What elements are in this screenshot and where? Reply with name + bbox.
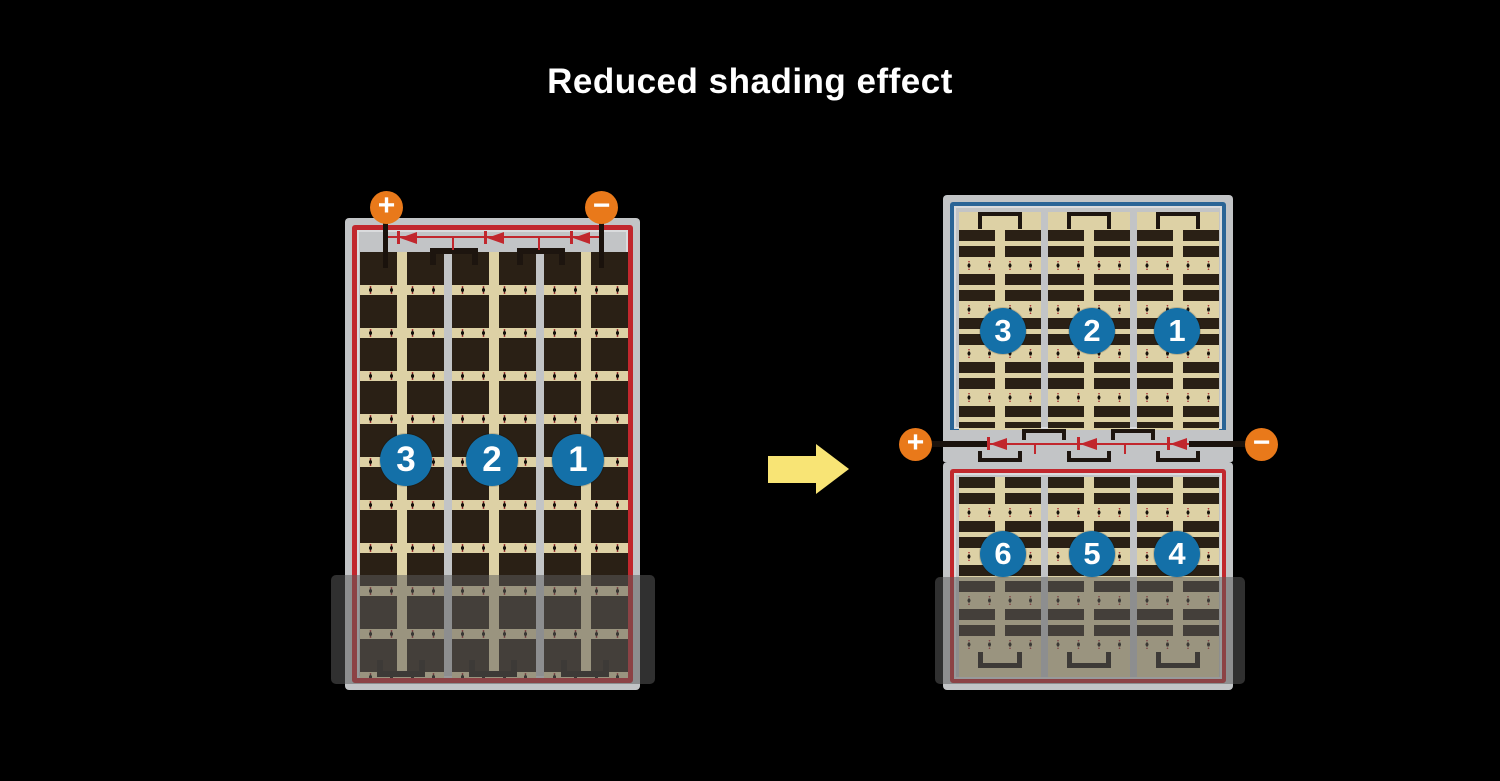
transform-arrow	[768, 456, 816, 483]
minus-icon: −	[1253, 428, 1271, 458]
string-connector-u	[978, 451, 1022, 462]
string-connector-bracket	[1111, 429, 1155, 440]
shade-overlay	[935, 577, 1245, 684]
minus-terminal: −	[585, 191, 618, 224]
string-number-badge: 3	[980, 308, 1026, 354]
plus-icon: +	[907, 428, 925, 458]
diode-icon	[1167, 437, 1187, 450]
string-connector-bracket	[1067, 212, 1111, 229]
string-number: 6	[994, 536, 1011, 572]
reduced-shading-diagram: Reduced shading effect + − 3 2 1	[0, 0, 1500, 781]
diode-tap-tick	[1034, 445, 1036, 454]
string-number: 3	[994, 313, 1011, 349]
string-number-badge: 1	[552, 434, 604, 486]
string-number: 5	[1083, 536, 1100, 572]
string-number-badge: 1	[1154, 308, 1200, 354]
shade-overlay	[331, 575, 655, 684]
diode-tap-tick	[538, 238, 540, 250]
string-number-badge: 2	[1069, 308, 1115, 354]
diode-icon	[484, 231, 504, 244]
string-connector-bracket	[517, 248, 565, 265]
string-connector-u	[1067, 451, 1111, 462]
string-connector-bracket	[1156, 212, 1200, 229]
diode-icon	[1077, 437, 1097, 450]
string-number-badge: 3	[380, 434, 432, 486]
string-number-badge: 5	[1069, 531, 1115, 577]
string-number: 1	[568, 440, 587, 480]
string-number: 3	[396, 440, 415, 480]
diode-icon	[397, 231, 417, 244]
minus-icon: −	[593, 191, 611, 221]
string-number: 4	[1168, 536, 1185, 572]
string-number: 2	[482, 440, 501, 480]
string-connector-u	[1156, 451, 1200, 462]
diode-tap-tick	[452, 238, 454, 250]
minus-terminal: −	[1245, 428, 1278, 461]
plus-icon: +	[378, 191, 396, 221]
string-number-badge: 4	[1154, 531, 1200, 577]
diode-tap-tick	[1124, 445, 1126, 454]
string-connector-bracket	[430, 248, 478, 265]
string-number: 1	[1168, 313, 1185, 349]
string-number: 2	[1083, 313, 1100, 349]
string-connector-bracket	[978, 212, 1022, 229]
string-number-badge: 2	[466, 434, 518, 486]
transform-arrow-head	[816, 444, 849, 494]
diode-icon	[987, 437, 1007, 450]
string-connector-bracket	[1022, 429, 1066, 440]
page-title: Reduced shading effect	[0, 62, 1500, 102]
diode-icon	[570, 231, 590, 244]
plus-terminal: +	[899, 428, 932, 461]
string-number-badge: 6	[980, 531, 1026, 577]
terminal-stem	[1189, 441, 1247, 447]
terminal-stem	[929, 441, 987, 447]
plus-terminal: +	[370, 191, 403, 224]
